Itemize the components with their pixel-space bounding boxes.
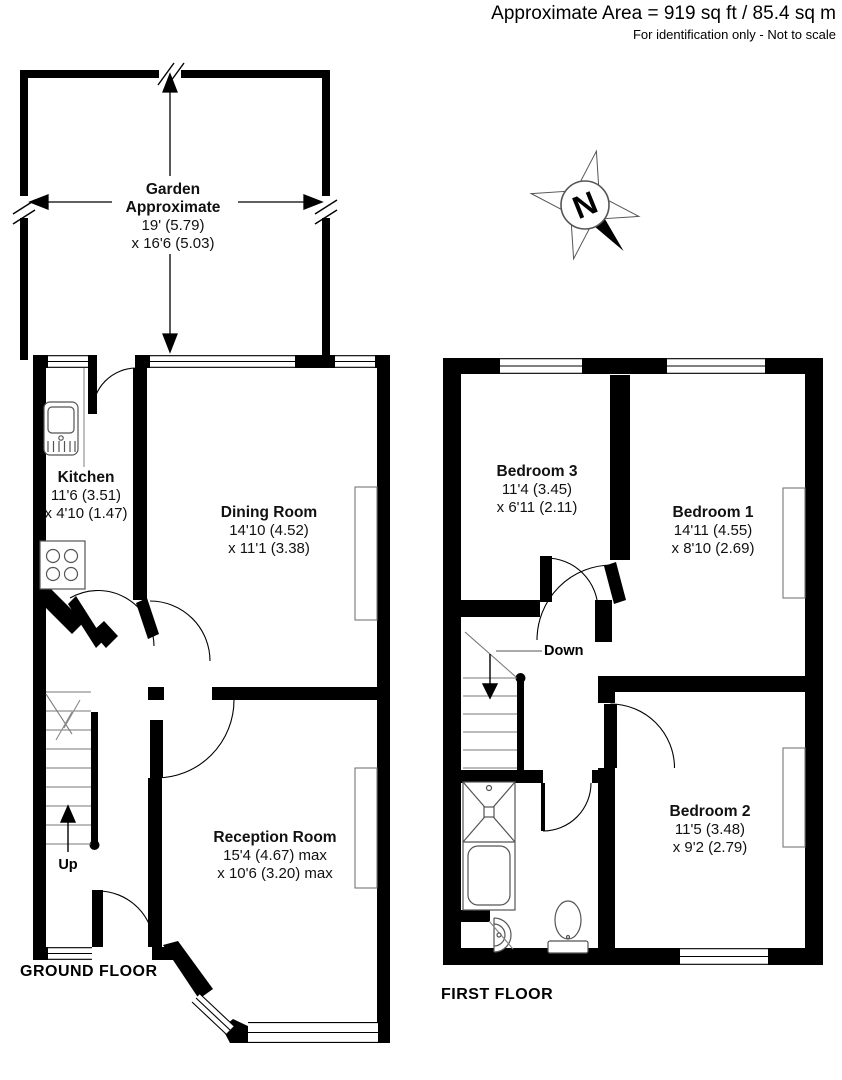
bathroom-sink — [489, 918, 513, 952]
kitchen-hob — [40, 541, 85, 589]
bedroom3-label: Bedroom 3 11'4 (3.45) x 6'11 (2.11) — [447, 463, 627, 517]
stairs-down-label: Down — [544, 643, 624, 659]
first-floor-stairs — [463, 632, 542, 768]
toilet — [548, 901, 588, 953]
down-arrow — [483, 654, 497, 698]
dining-door-leaf — [136, 598, 159, 639]
disclaimer-text: For identification only - Not to scale — [633, 27, 836, 42]
garden-label: Garden Approximate 19' (5.79) x 16'6 (5.… — [63, 181, 283, 253]
stair-newel-post — [90, 840, 100, 850]
kitchen-sink — [44, 402, 78, 455]
bedroom2-door-leaf — [604, 704, 617, 768]
stairs-up-label: Up — [38, 857, 98, 873]
bedroom1-label: Bedroom 1 14'11 (4.55) x 8'10 (2.69) — [623, 504, 803, 558]
kitchen-label: Kitchen 11'6 (3.51) x 4'10 (1.47) — [6, 469, 166, 523]
reception-room-label: Reception Room 15'4 (4.67) max x 10'6 (3… — [165, 829, 385, 883]
bedroom3-door-leaf — [540, 556, 552, 602]
bedroom2-label: Bedroom 2 11'5 (3.48) x 9'2 (2.79) — [620, 803, 800, 857]
ground-floor-title: GROUND FLOOR — [20, 963, 158, 981]
floorplan-page: N Approximate Area = 919 sq ft / 85.4 sq… — [0, 0, 842, 1080]
first-floor-title: FIRST FLOOR — [441, 986, 553, 1004]
compass-rose: N — [531, 151, 639, 259]
stair-stringer — [91, 712, 98, 845]
bathroom-partition — [461, 910, 490, 922]
front-door-leaf — [92, 890, 103, 947]
bathtub — [463, 782, 515, 910]
ff-stair-stringer — [517, 678, 524, 777]
up-arrow — [61, 806, 75, 852]
ground-floor-walls — [33, 355, 390, 1043]
bathroom-door-leaf — [541, 783, 545, 831]
reception-door-leaf — [150, 720, 163, 778]
first-floor-windows — [500, 358, 768, 965]
approximate-area-text: Approximate Area = 919 sq ft / 85.4 sq m — [491, 3, 836, 25]
dining-room-label: Dining Room 14'10 (4.52) x 11'1 (3.38) — [169, 504, 369, 558]
bedroom1-door-leaf — [604, 562, 626, 604]
